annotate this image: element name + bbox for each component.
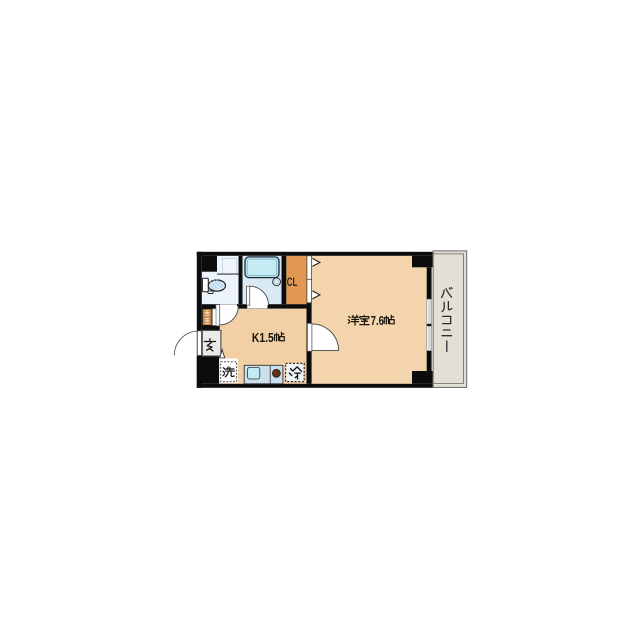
svg-text:K1.5: K1.5: [252, 330, 274, 345]
svg-text:7.6: 7.6: [371, 313, 384, 328]
svg-text:CL: CL: [287, 275, 298, 289]
